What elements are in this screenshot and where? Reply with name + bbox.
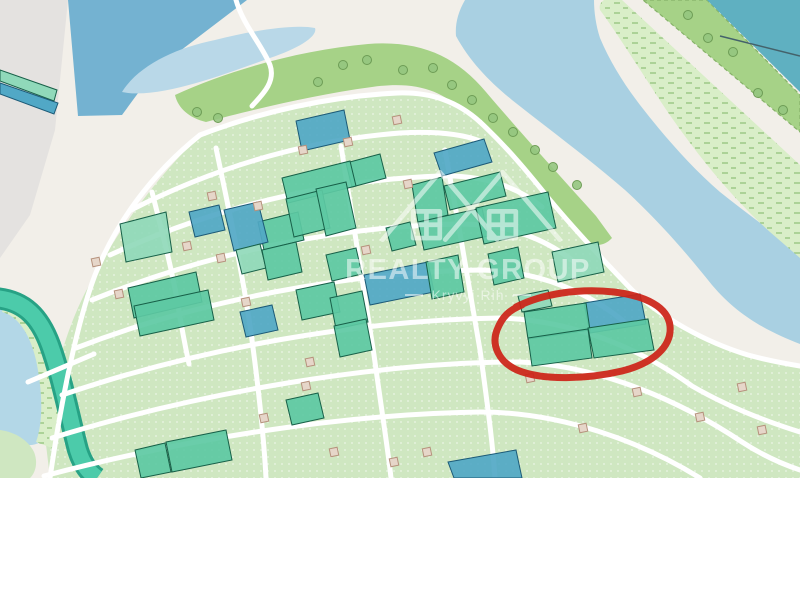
building-icon — [695, 412, 704, 421]
building-icon — [578, 423, 587, 432]
building-icon — [392, 115, 401, 124]
building-icon — [114, 289, 123, 298]
tree-icon — [509, 128, 518, 137]
tree-icon — [573, 181, 582, 190]
tree-icon — [448, 81, 457, 90]
tree-icon — [429, 64, 438, 73]
building-icon — [301, 381, 310, 390]
tree-icon — [363, 56, 372, 65]
building-icon — [298, 145, 307, 154]
building-icon — [329, 447, 338, 456]
tree-icon — [684, 11, 693, 20]
building-icon — [259, 413, 268, 422]
parcel — [135, 443, 171, 478]
tree-icon — [399, 66, 408, 75]
map-layers — [0, 0, 800, 478]
building-icon — [389, 457, 398, 466]
map-canvas[interactable] — [0, 0, 800, 478]
page: REALTY GROUP Kryvyi Rih — [0, 0, 800, 600]
parcel — [236, 244, 266, 274]
parcel — [412, 177, 448, 223]
tree-icon — [468, 96, 477, 105]
tree-icon — [339, 61, 348, 70]
building-icon — [207, 191, 216, 200]
map-wrap: REALTY GROUP Kryvyi Rih — [0, 0, 800, 478]
tree-icon — [549, 163, 558, 172]
building-icon — [241, 297, 250, 306]
building-icon — [182, 241, 191, 250]
tree-icon — [754, 89, 763, 98]
parcel — [426, 255, 464, 299]
building-icon — [305, 357, 314, 366]
building-icon — [91, 257, 100, 266]
building-icon — [216, 253, 225, 262]
tree-icon — [193, 108, 202, 117]
tree-icon — [489, 114, 498, 123]
tree-icon — [779, 106, 788, 115]
parcel — [334, 319, 372, 357]
building-icon — [422, 447, 431, 456]
tree-icon — [214, 114, 223, 123]
building-icon — [737, 382, 746, 391]
building-icon — [253, 201, 262, 210]
tree-icon — [314, 78, 323, 87]
building-icon — [343, 137, 352, 146]
tree-icon — [729, 48, 738, 57]
parcel — [488, 247, 524, 285]
building-icon — [361, 245, 370, 254]
building-icon — [757, 425, 766, 434]
building-icon — [403, 179, 412, 188]
tree-icon — [531, 146, 540, 155]
building-icon — [632, 387, 641, 396]
tree-icon — [704, 34, 713, 43]
